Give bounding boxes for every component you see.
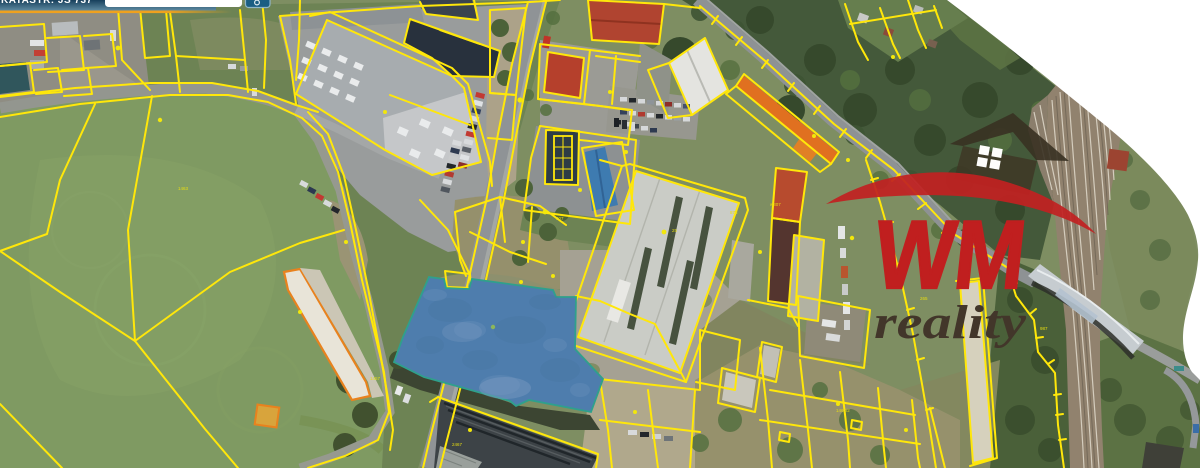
svg-text:1463: 1463 bbox=[178, 186, 189, 191]
svg-text:reality: reality bbox=[874, 296, 1027, 349]
svg-text:907: 907 bbox=[556, 216, 564, 221]
svg-text:w307: w307 bbox=[770, 202, 781, 207]
svg-text:WM: WM bbox=[870, 200, 1031, 309]
svg-text:KATASTR: JS 737: KATASTR: JS 737 bbox=[1, 0, 93, 6]
svg-text:873: 873 bbox=[730, 210, 738, 215]
svg-text:1463/2: 1463/2 bbox=[836, 408, 850, 413]
svg-text:2467: 2467 bbox=[452, 442, 463, 447]
svg-text:1457: 1457 bbox=[370, 376, 381, 381]
svg-text:987: 987 bbox=[1040, 326, 1048, 331]
svg-text:25: 25 bbox=[672, 228, 678, 233]
